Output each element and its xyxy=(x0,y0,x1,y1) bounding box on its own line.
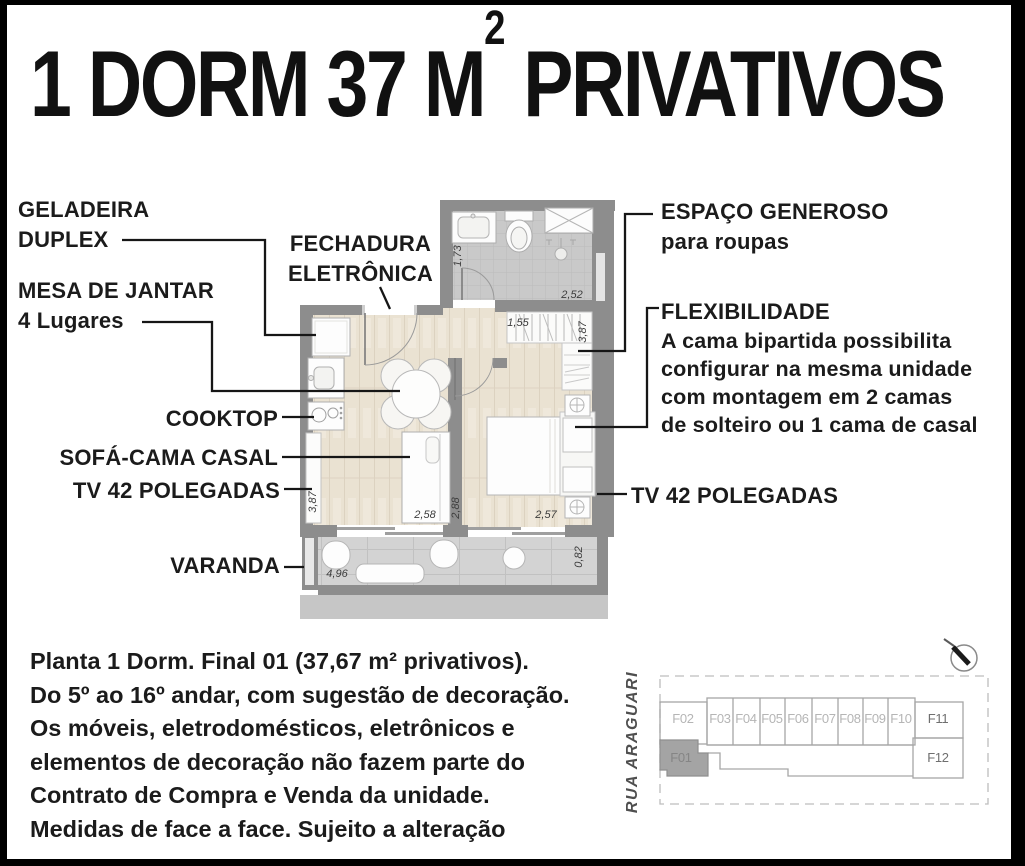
dim-varanda-depth: 0,82 xyxy=(573,546,585,567)
varanda-chair xyxy=(430,540,458,568)
nightstand-lamp-icon xyxy=(570,398,584,412)
keyplan-label-f01: F01 xyxy=(670,750,692,765)
callout-fechadura: FECHADURA ELETRÔNICA xyxy=(278,229,443,289)
callout-flexibilidade-title: FLEXIBILIDADE xyxy=(661,297,978,327)
callout-tv-bedroom: TV 42 POLEGADAS xyxy=(631,481,838,511)
varanda-window xyxy=(305,538,314,585)
keyplan-label-f10: F10 xyxy=(890,711,912,726)
wall-bottom-right xyxy=(565,525,614,537)
disclaimer-line-6: Medidas de face a face. Sujeito a altera… xyxy=(30,813,570,847)
wall-top-right xyxy=(417,305,443,315)
frame-border-top xyxy=(0,0,1025,5)
dim-living-width: 2,58 xyxy=(413,509,436,521)
dim-living-height: 3,87 xyxy=(307,490,319,512)
sliding-door-bedroom xyxy=(468,527,521,530)
keyplan-label-f09: F09 xyxy=(864,711,886,726)
flex-line-4: de solteiro ou 1 cama de casal xyxy=(661,411,978,439)
flex-line-2: configurar na mesma unidade xyxy=(661,355,978,383)
wall-bathroom-bottom xyxy=(495,300,592,312)
title-prefix: 1 DORM 37 M xyxy=(30,31,484,136)
sofa-pillow xyxy=(426,437,439,463)
disclaimer-line-1: Planta 1 Dorm. Final 01 (37,67 m² privat… xyxy=(30,645,570,679)
dim-bathroom-height: 1,73 xyxy=(452,244,464,266)
hall-floor xyxy=(443,308,497,358)
sliding-door-living xyxy=(385,532,443,535)
keyplan-label-f08: F08 xyxy=(839,711,861,726)
street-name-label: RUA ARAGUARI xyxy=(624,671,641,813)
title-superscript: 2 xyxy=(484,2,505,55)
keyplan-label-f05: F05 xyxy=(761,711,783,726)
ground-strip xyxy=(300,595,608,619)
dim-bedroom-width: 2,57 xyxy=(534,509,557,521)
callout-espaco-generoso: ESPAÇO GENEROSO para roupas xyxy=(661,197,889,257)
keyplan-label-f06: F06 xyxy=(787,711,809,726)
keyplan-label-f11: F11 xyxy=(928,711,949,726)
page-title: 1 DORM 37 M2 PRIVATIVOS xyxy=(30,30,944,138)
callout-tv-living: TV 42 POLEGADAS xyxy=(18,476,280,506)
bathroom-faucet xyxy=(471,214,475,218)
dining-table xyxy=(381,359,451,429)
wall-top-left xyxy=(300,305,363,315)
callout-mesa-de-jantar: MESA DE JANTAR 4 Lugares xyxy=(18,276,214,336)
dim-bedroom-height: 2,88 xyxy=(450,496,462,519)
sliding-door-living xyxy=(337,527,395,530)
wall-bottom-mid xyxy=(443,525,468,537)
keyplan-label-f02: F02 xyxy=(672,711,694,726)
wall-divider-stub xyxy=(493,358,507,368)
fridge xyxy=(312,318,350,356)
dim-bathroom-width: 2,52 xyxy=(560,289,582,301)
callout-mesa-line1: MESA DE JANTAR xyxy=(18,276,214,306)
dim-varanda-width: 4,96 xyxy=(326,568,348,580)
keyplan-label-f07: F07 xyxy=(814,711,836,726)
frame-border-right xyxy=(1011,0,1025,866)
callout-flexibilidade: FLEXIBILIDADE A cama bipartida possibili… xyxy=(661,297,978,439)
bathroom-window xyxy=(596,253,605,301)
cooktop-knobs xyxy=(340,407,343,420)
frame-border-left xyxy=(0,0,7,866)
disclaimer-text: Planta 1 Dorm. Final 01 (37,67 m² privat… xyxy=(30,645,570,846)
keyplan-label-f04: F04 xyxy=(735,711,757,726)
callout-flexibilidade-text: A cama bipartida possibilita configurar … xyxy=(661,327,978,439)
toilet-bowl-inner xyxy=(511,227,527,249)
wall-varanda-bottom xyxy=(318,585,608,595)
callout-espaco-line2: para roupas xyxy=(661,227,889,257)
dining-table-top xyxy=(392,370,440,418)
keyplan: F01 F02 F03 F04 F05 F06 F07 F08 F09 F10 … xyxy=(624,639,988,813)
bathroom-sink-basin xyxy=(458,217,489,238)
kitchen-faucet xyxy=(309,376,314,381)
callout-geladeira-line1: GELADEIRA xyxy=(18,195,149,225)
keyplan-corridor xyxy=(708,753,913,776)
disclaimer-line-3: Os móveis, eletrodomésticos, eletrônicos… xyxy=(30,712,570,746)
callout-fechadura-line1: FECHADURA xyxy=(278,229,443,259)
varanda-chair xyxy=(322,541,350,569)
title-suffix: PRIVATIVOS xyxy=(505,31,944,136)
flex-line-1: A cama bipartida possibilita xyxy=(661,327,978,355)
north-arrow-icon xyxy=(944,639,977,671)
sliding-door-bedroom xyxy=(512,532,565,535)
callout-geladeira: GELADEIRA DUPLEX xyxy=(18,195,149,255)
callout-geladeira-line2: DUPLEX xyxy=(18,225,149,255)
bed-pillow-top xyxy=(563,418,592,452)
keyplan-unit-labels: F01 F02 F03 F04 F05 F06 F07 F08 F09 F10 … xyxy=(670,711,949,765)
bed xyxy=(487,417,562,495)
callout-fechadura-line2: ELETRÔNICA xyxy=(278,259,443,289)
disclaimer-line-5: Contrato de Compra e Venda da unidade. xyxy=(30,779,570,813)
keyplan-boundary xyxy=(660,676,988,804)
keyplan-label-f12: F12 xyxy=(927,750,949,765)
leader-fechadura xyxy=(380,287,390,309)
varanda-bench xyxy=(356,564,424,583)
bed-pillow-bottom xyxy=(563,467,592,492)
disclaimer-line-2: Do 5º ao 16º andar, com sugestão de deco… xyxy=(30,679,570,713)
frame-border-bottom xyxy=(0,859,1025,866)
keyplan-label-f03: F03 xyxy=(709,711,731,726)
nightstand-lamp-icon xyxy=(570,500,584,514)
shower-drain xyxy=(555,248,567,260)
floor-plan-page: 1 DORM 37 M2 PRIVATIVOS xyxy=(0,0,1025,866)
kitchen-sink xyxy=(314,367,334,389)
flex-line-3: com montagem em 2 camas xyxy=(661,383,978,411)
dim-closet-width: 1,55 xyxy=(507,317,529,329)
disclaimer-line-4: elementos de decoração não fazem parte d… xyxy=(30,746,570,780)
varanda-table xyxy=(503,547,525,569)
callout-varanda: VARANDA xyxy=(18,551,280,581)
callout-cooktop: COOKTOP xyxy=(18,404,278,434)
callout-sofa-cama: SOFÁ-CAMA CASAL xyxy=(18,443,278,473)
callout-espaco-line1: ESPAÇO GENEROSO xyxy=(661,197,889,227)
dim-closet-height: 3,87 xyxy=(577,320,589,342)
callout-mesa-line2: 4 Lugares xyxy=(18,306,214,336)
